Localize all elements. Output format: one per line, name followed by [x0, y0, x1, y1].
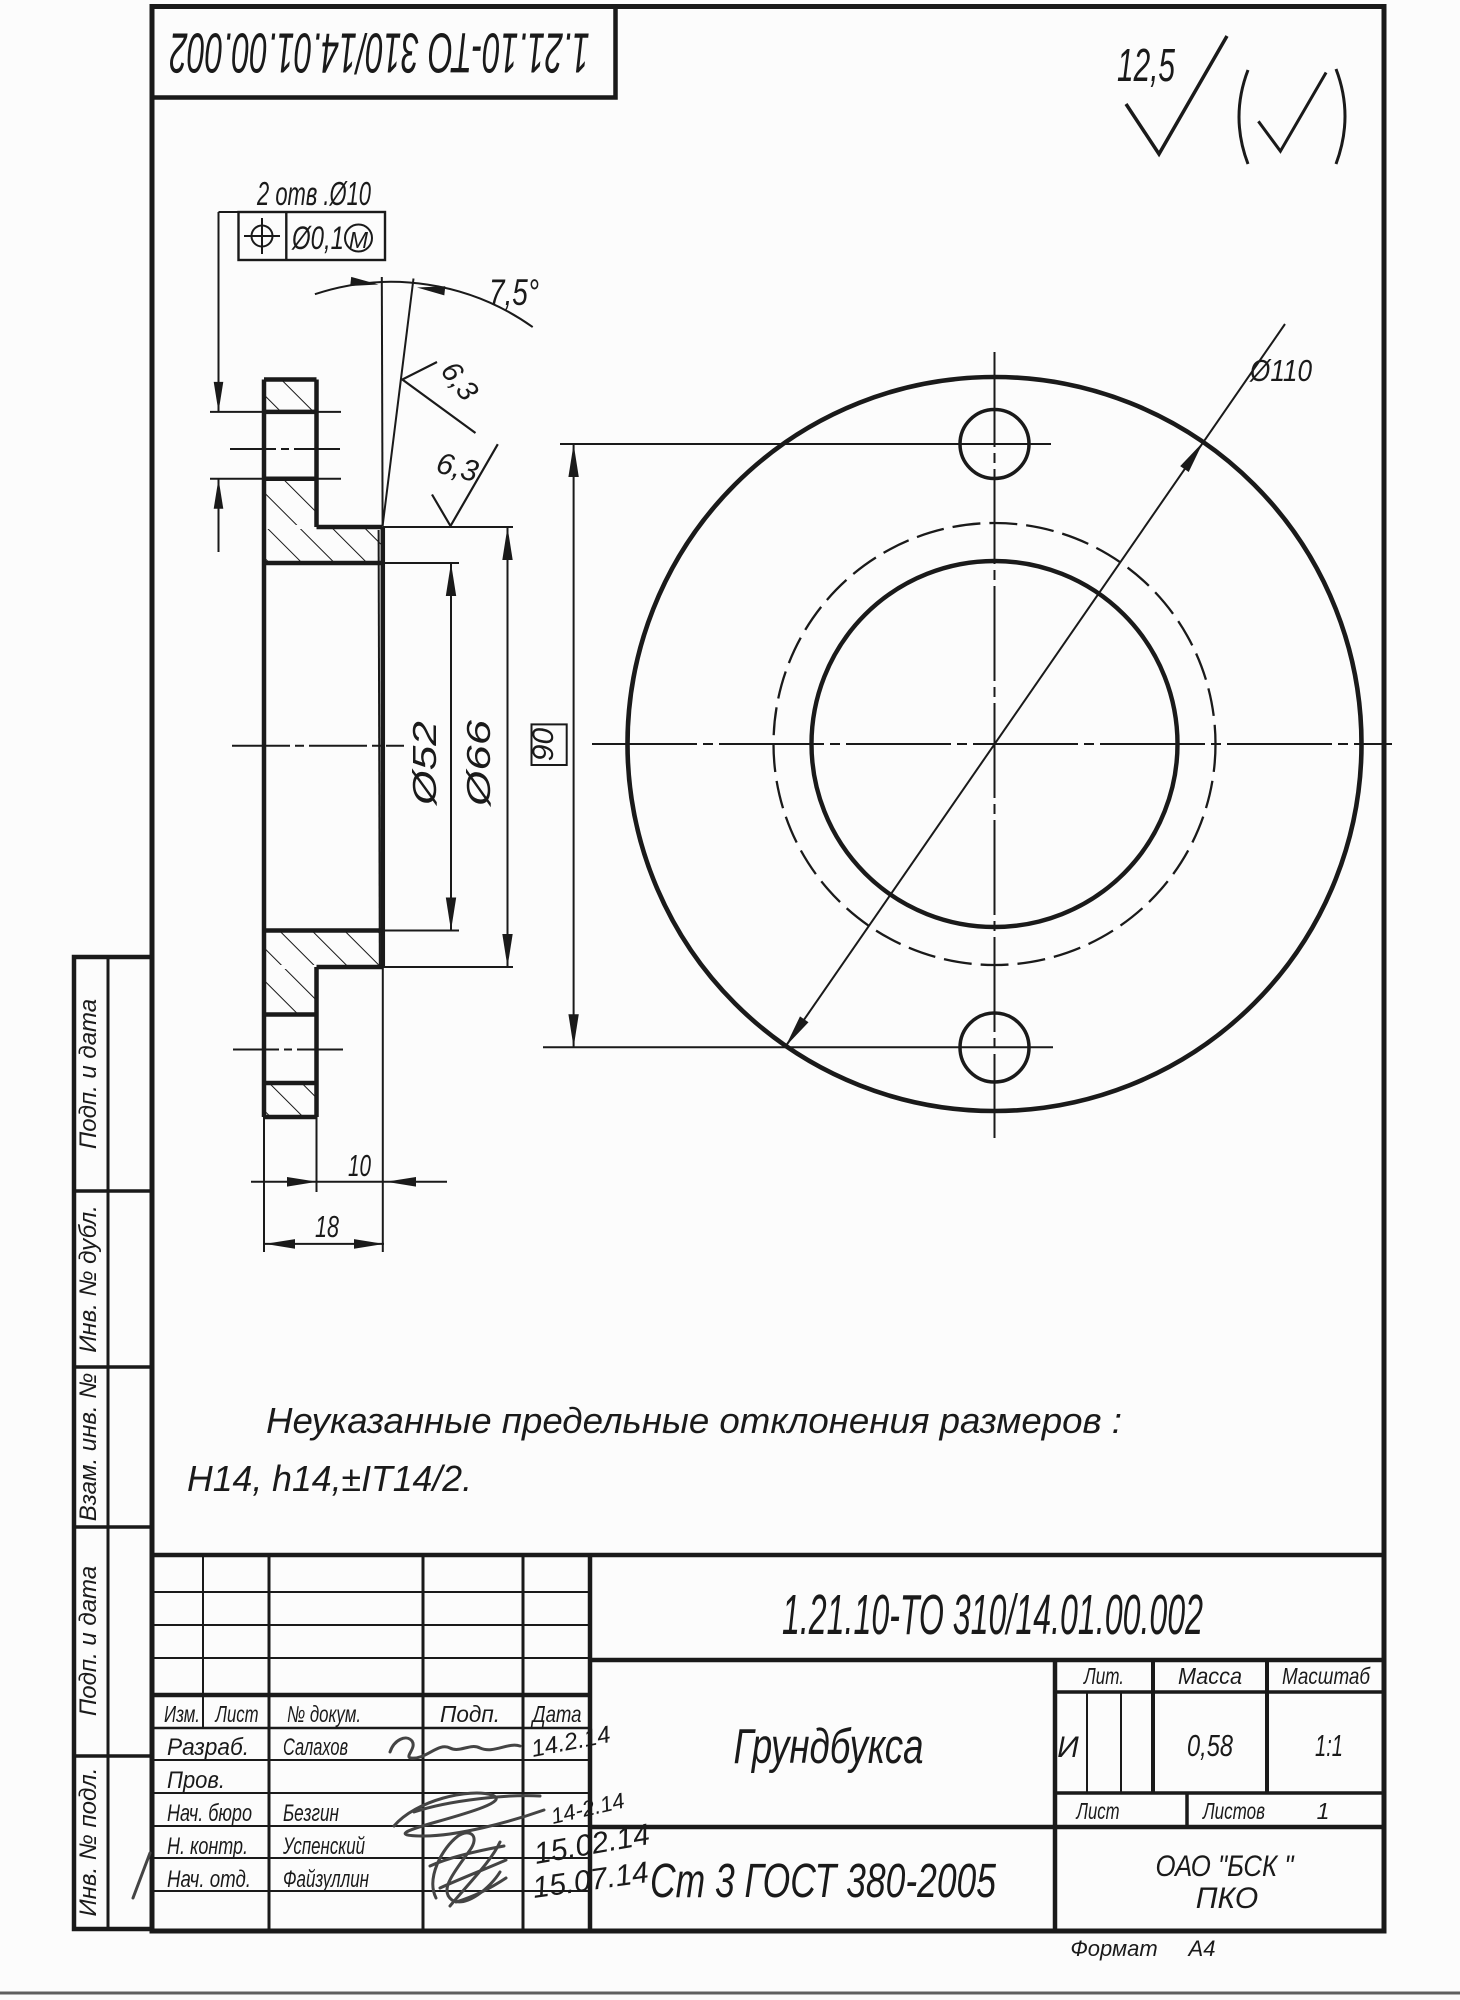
svg-text:Подп. и дата: Подп. и дата [75, 999, 102, 1149]
svg-text:ПКО: ПКО [1196, 1882, 1258, 1915]
svg-text:Пров.: Пров. [167, 1767, 225, 1794]
svg-text:Салахов: Салахов [283, 1734, 348, 1761]
svg-text:№ докум.: № докум. [287, 1701, 361, 1727]
svg-text:Листов: Листов [1202, 1798, 1265, 1824]
svg-text:1:1: 1:1 [1315, 1728, 1343, 1763]
svg-text:18: 18 [315, 1209, 340, 1244]
svg-text:Ø110: Ø110 [1249, 353, 1312, 388]
svg-text:Н14, h14,±IT14/2.: Н14, h14,±IT14/2. [187, 1458, 472, 1499]
svg-text:Инв. № дубл.: Инв. № дубл. [75, 1205, 102, 1353]
svg-text:1.21.10-ТО 310/14.01.00.002: 1.21.10-ТО 310/14.01.00.002 [170, 20, 590, 84]
svg-text:Лист: Лист [214, 1701, 258, 1727]
svg-text:Лист: Лист [1075, 1798, 1119, 1824]
svg-text:Нач. бюро: Нач. бюро [167, 1800, 252, 1827]
svg-text:Масштаб: Масштаб [1282, 1663, 1371, 1689]
svg-text:Подп. и дата: Подп. и дата [75, 1566, 102, 1716]
svg-text:Подп.: Подп. [440, 1701, 500, 1727]
svg-text:Ø0,1: Ø0,1 [291, 220, 344, 256]
svg-text:Нач. отд.: Нач. отд. [167, 1866, 251, 1893]
svg-text:12,5: 12,5 [1117, 39, 1175, 91]
svg-text:Ø52: Ø52 [406, 721, 443, 806]
svg-text:0,58: 0,58 [1187, 1728, 1234, 1763]
svg-text:Взам. инв. №: Взам. инв. № [75, 1373, 102, 1521]
svg-text:Разраб.: Разраб. [167, 1734, 249, 1761]
svg-text:Ø66: Ø66 [460, 719, 497, 807]
svg-text:Дата: Дата [530, 1701, 581, 1727]
svg-text:10: 10 [348, 1148, 371, 1183]
svg-text:90: 90 [527, 728, 560, 762]
svg-text:Неуказанные предельные отклоне: Неуказанные предельные отклонения размер… [266, 1400, 1122, 1441]
svg-text:Инв. № подл.: Инв. № подл. [75, 1768, 102, 1917]
svg-text:Н. контр.: Н. контр. [167, 1833, 248, 1860]
svg-text:Изм.: Изм. [164, 1701, 200, 1727]
svg-text:А4: А4 [1187, 1936, 1216, 1961]
svg-text:Лит.: Лит. [1083, 1663, 1124, 1689]
svg-text:1.21.10-ТО 310/14.01.00.002: 1.21.10-ТО 310/14.01.00.002 [782, 1583, 1203, 1647]
svg-text:2 отв .Ø10: 2 отв .Ø10 [256, 175, 371, 212]
svg-text:Грундбукса: Грундбукса [734, 1720, 924, 1774]
svg-text:Формат: Формат [1070, 1936, 1157, 1961]
svg-text:Безгин: Безгин [283, 1800, 339, 1827]
svg-text:Успенский: Успенский [282, 1833, 365, 1860]
svg-text:И: И [1057, 1731, 1079, 1764]
svg-text:Масса: Масса [1178, 1663, 1242, 1689]
svg-text:Файзуллин: Файзуллин [283, 1866, 369, 1893]
svg-text:Ст 3 ГОСТ 380-2005: Ст 3 ГОСТ 380-2005 [650, 1855, 996, 1908]
svg-text:ОАО "БСК ": ОАО "БСК " [1156, 1850, 1295, 1883]
svg-text:1: 1 [1317, 1798, 1330, 1824]
svg-text:М: М [349, 227, 369, 253]
svg-text:7,5°: 7,5° [489, 272, 539, 313]
